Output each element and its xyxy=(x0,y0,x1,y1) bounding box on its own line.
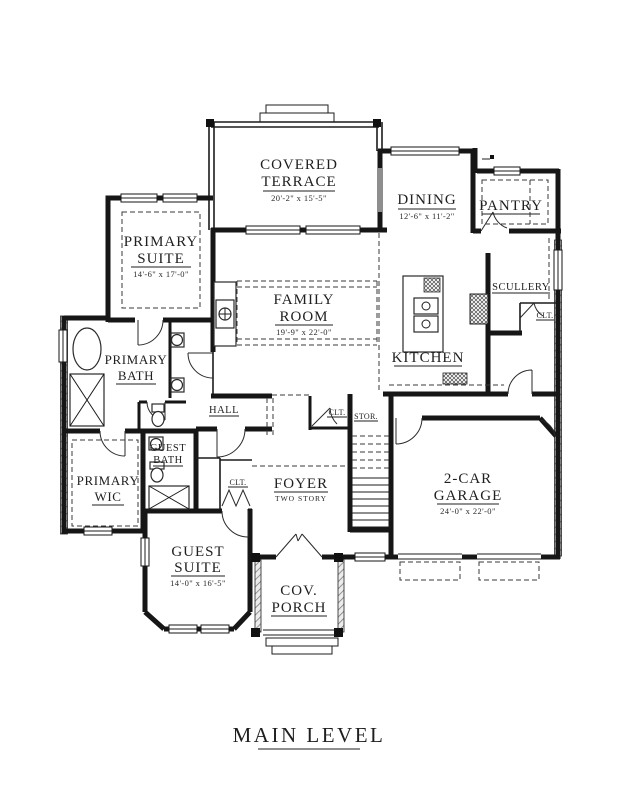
room-label-foyer-two-story: TWO STORY xyxy=(275,494,327,503)
guest-suite-door xyxy=(222,511,248,537)
room-dims-garage: 24'-0" x 22'-0" xyxy=(440,506,496,516)
garage-entry-door xyxy=(396,418,422,444)
vanity-sink xyxy=(171,378,184,392)
scullery-door xyxy=(508,370,532,394)
bath-hall-door xyxy=(188,353,213,378)
window xyxy=(121,194,157,202)
porch-post xyxy=(251,628,260,637)
refrigerator xyxy=(470,294,488,324)
room-label-coat-closet: CLT. xyxy=(230,478,247,487)
hose-bib-symbol xyxy=(482,155,494,159)
window xyxy=(494,167,520,175)
room-label-family-room: ROOM xyxy=(279,309,328,325)
room-dims-dining: 12'-6" x 11'-2" xyxy=(399,211,454,221)
room-label-primary-suite: PRIMARY xyxy=(124,234,199,250)
room-label-primary-bath: BATH xyxy=(118,368,154,383)
room-dims-covered-terrace: 20'-2" x 15'-5" xyxy=(271,193,327,203)
room-label-garage: GARAGE xyxy=(434,488,503,504)
room-label-cov-porch: PORCH xyxy=(271,600,326,616)
porch-step xyxy=(272,646,332,654)
room-label-pantry: PANTRY xyxy=(479,198,543,214)
coat-closet-bifold-door xyxy=(222,490,250,506)
pantry-door xyxy=(481,212,507,231)
floor-plan-canvas: COVERED TERRACE 20'-2" x 15'-5" DINING 1… xyxy=(0,0,618,800)
room-label-primary-suite: SUITE xyxy=(137,251,185,267)
kitchen-island xyxy=(403,276,443,352)
room-dims-primary-suite: 14'-6" x 17'-0" xyxy=(133,269,189,279)
room-label-scullery-closet: CLT. xyxy=(537,311,554,320)
labels-layer: COVERED TERRACE 20'-2" x 15'-5" DINING 1… xyxy=(77,157,554,749)
window xyxy=(59,330,67,362)
room-dims-family-room: 19'-9" x 22'-0" xyxy=(276,327,332,337)
room-label-family-room: FAMILY xyxy=(274,292,335,308)
room-label-hall-closet: CLT. xyxy=(329,408,346,417)
window xyxy=(163,194,197,202)
window xyxy=(201,625,229,633)
room-label-covered-terrace: TERRACE xyxy=(261,174,336,190)
room-label-kitchen: KITCHEN xyxy=(392,350,465,366)
guest-hall-door xyxy=(217,429,245,457)
room-label-dining: DINING xyxy=(397,192,456,208)
porch-step xyxy=(266,638,338,646)
porch-post xyxy=(334,628,343,637)
garage-door-swing xyxy=(400,562,460,580)
room-dims-guest-suite: 14'-0" x 16'-5" xyxy=(170,578,226,588)
room-label-primary-wic: PRIMARY xyxy=(77,473,140,488)
garage-door-swing xyxy=(479,562,539,580)
room-label-foyer: FOYER xyxy=(274,476,328,492)
room-label-guest-suite: GUEST xyxy=(171,544,224,560)
window xyxy=(554,250,562,290)
window xyxy=(169,625,197,633)
toilet xyxy=(152,404,164,427)
room-label-guest-bath: BATH xyxy=(153,455,182,466)
floor-plan-page: COVERED TERRACE 20'-2" x 15'-5" DINING 1… xyxy=(0,0,618,800)
room-label-guest-suite: SUITE xyxy=(174,560,222,576)
porch-post xyxy=(334,553,343,562)
porch-post xyxy=(251,553,260,562)
room-label-primary-wic: WIC xyxy=(94,489,121,504)
room-label-primary-bath: PRIMARY xyxy=(105,352,168,367)
room-label-hall: HALL xyxy=(209,405,239,416)
vanity-sink xyxy=(171,333,184,347)
mudroom-bench xyxy=(443,373,467,384)
wic-door xyxy=(100,431,125,456)
window xyxy=(355,553,385,561)
window xyxy=(246,226,300,234)
room-label-stor: STOR. xyxy=(354,412,378,421)
walls-layer xyxy=(62,148,561,629)
window xyxy=(391,147,459,155)
room-label-cov-porch: COV. xyxy=(280,583,318,599)
cased-opening xyxy=(267,395,310,438)
room-label-garage: 2-CAR xyxy=(444,471,492,487)
guest-shower xyxy=(149,486,189,509)
primary-suite-door xyxy=(138,320,163,345)
window xyxy=(306,226,360,234)
bathtub xyxy=(73,328,101,370)
window xyxy=(84,527,112,535)
room-label-guest-bath: GUEST xyxy=(150,443,186,454)
front-double-door xyxy=(276,534,322,557)
fireplace xyxy=(214,282,236,346)
room-label-scullery: SCULLERY xyxy=(492,282,550,293)
staircase xyxy=(352,436,391,527)
window xyxy=(141,538,149,566)
plan-title: MAIN LEVEL xyxy=(233,723,386,747)
room-label-covered-terrace: COVERED xyxy=(260,157,338,173)
primary-shower xyxy=(70,374,104,426)
